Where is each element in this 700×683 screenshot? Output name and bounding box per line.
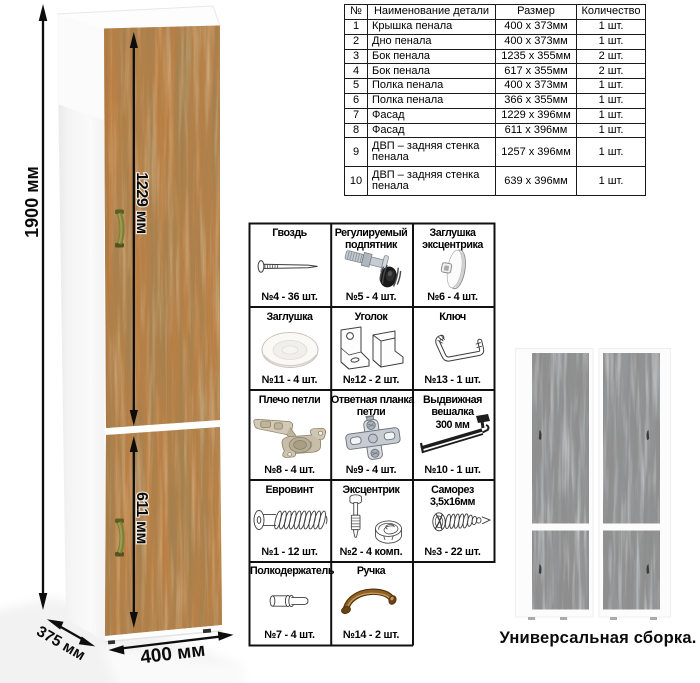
svg-text:1229 мм: 1229 мм — [133, 172, 150, 234]
svg-text:611 мм: 611 мм — [133, 492, 150, 544]
svg-text:1900 мм: 1900 мм — [22, 166, 42, 238]
